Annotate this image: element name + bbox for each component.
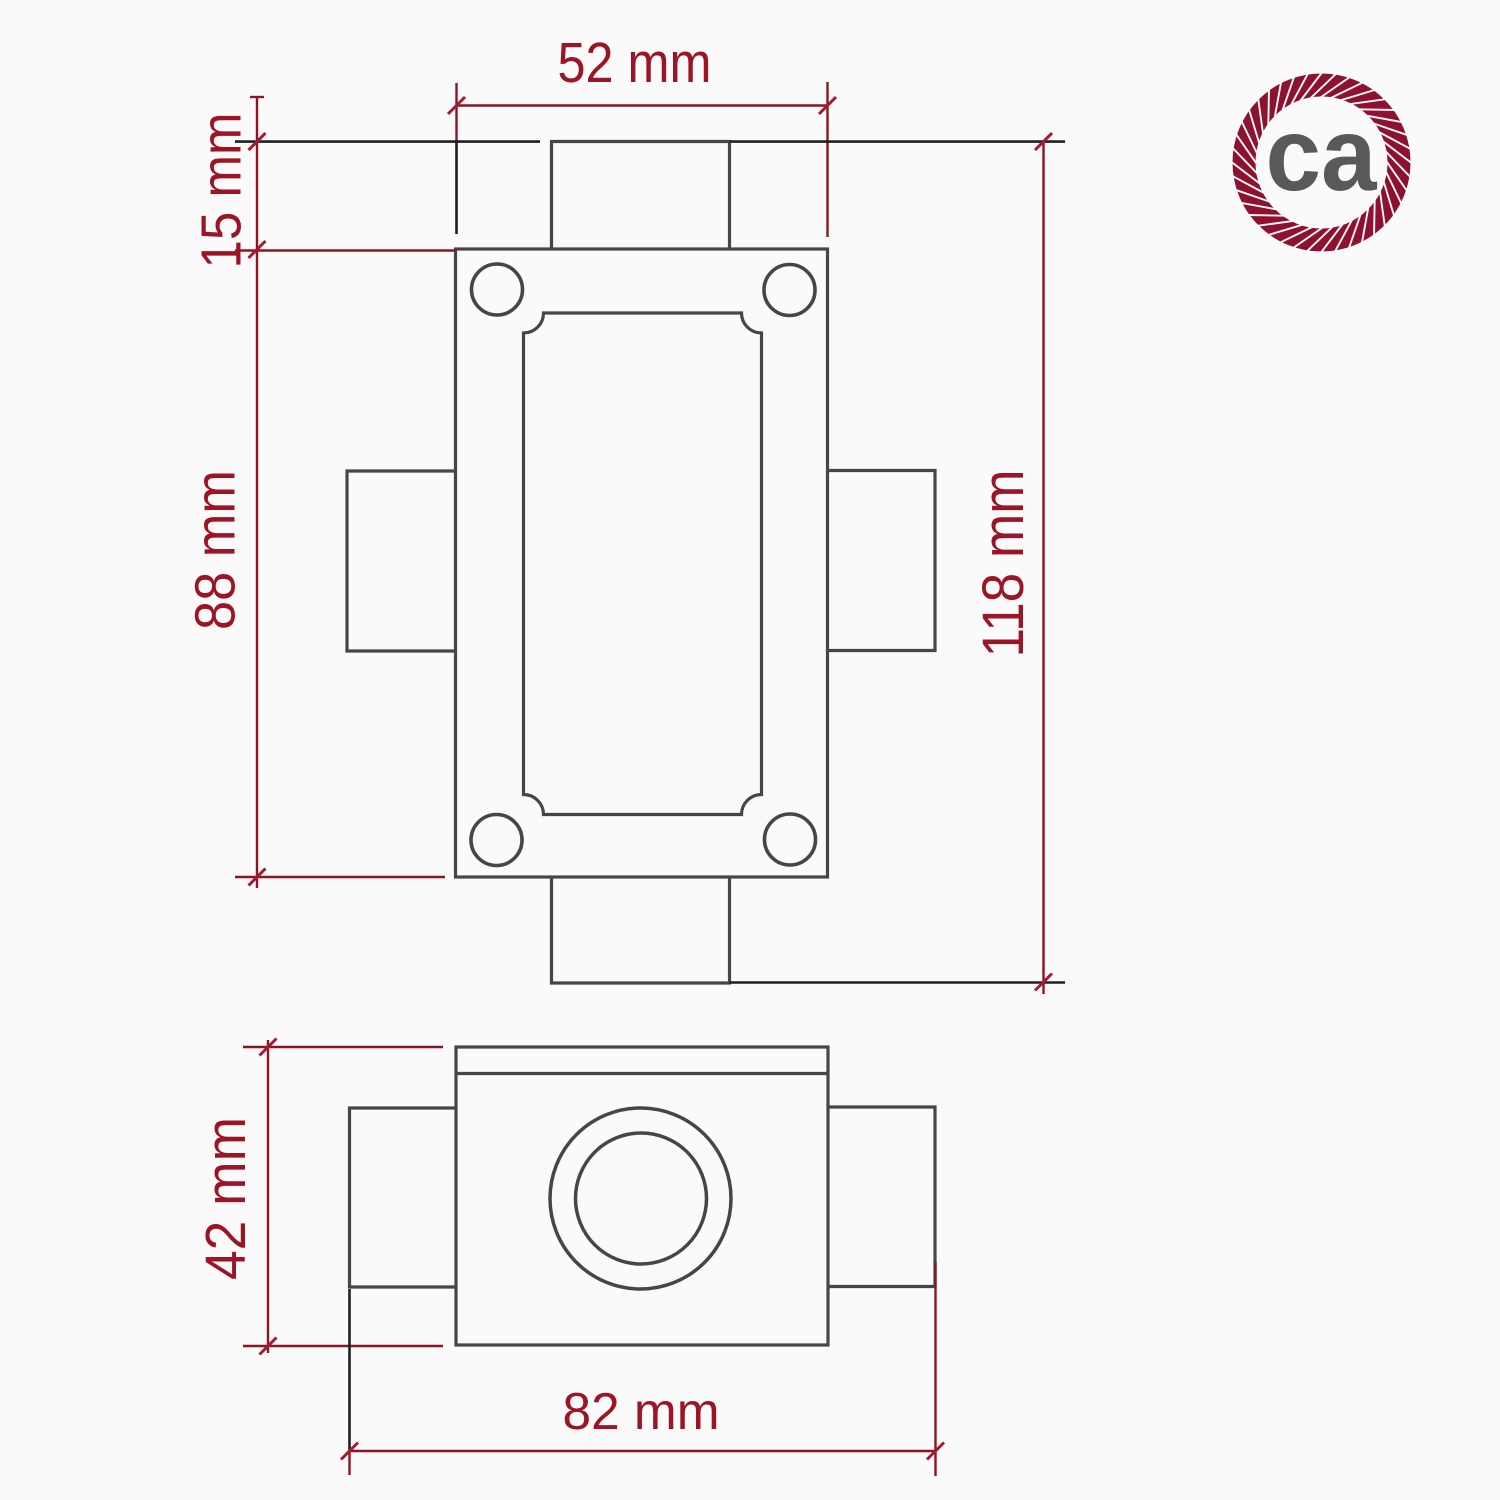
svg-text:52 mm: 52 mm [558,31,712,95]
svg-text:42 mm: 42 mm [194,1117,258,1280]
svg-text:15 mm: 15 mm [190,113,254,269]
svg-text:82 mm: 82 mm [563,1383,720,1441]
svg-text:ca: ca [1266,97,1378,213]
svg-text:118 mm: 118 mm [971,470,1036,658]
svg-text:88 mm: 88 mm [184,470,248,630]
